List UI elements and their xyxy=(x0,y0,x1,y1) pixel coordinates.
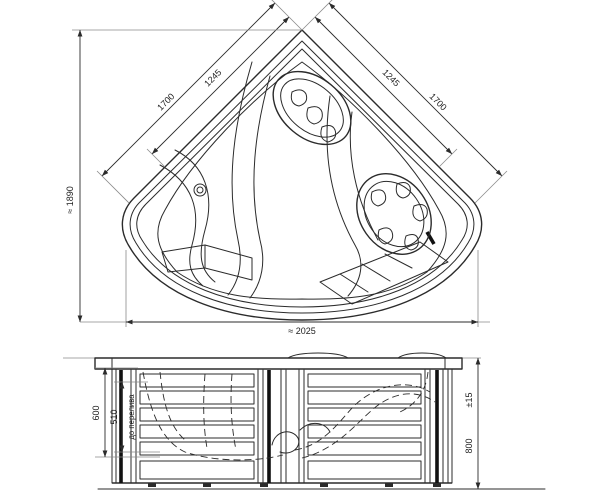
dim-label-side-left-outer: 1700 xyxy=(155,91,176,112)
headrest-hump-right xyxy=(398,353,446,358)
extension-line xyxy=(264,0,302,30)
dim-label-height-tolerance: ±15 xyxy=(464,393,474,408)
extension-line xyxy=(302,0,340,30)
dim-label-overflow-note: до перелива xyxy=(127,394,136,440)
dimension-overall-height: ≈ 1890 xyxy=(65,30,302,322)
headrest-top xyxy=(259,57,365,160)
jet-control xyxy=(194,184,206,196)
dim-label-height-value: 800 xyxy=(464,438,474,453)
top-view-outline xyxy=(122,30,481,320)
dim-label-depth-overflow: 510 xyxy=(109,409,119,424)
dimension-depth-total: 600 xyxy=(91,368,160,457)
headrest-hump-center xyxy=(288,353,348,358)
front-hidden-contours xyxy=(143,372,435,460)
front-view: 600 510 до перелива 800 ±15 xyxy=(63,353,545,489)
technical-drawing-canvas: 1700 1245 1245 1700 ≈ 1890 xyxy=(0,0,600,500)
dim-label-overall-height: ≈ 1890 xyxy=(65,186,75,213)
dim-label-side-right-outer: 1700 xyxy=(428,91,449,112)
bathtub-technical-drawing: 1700 1245 1245 1700 ≈ 1890 xyxy=(0,0,600,500)
dimension-overall-height-front: 800 ±15 xyxy=(464,358,478,489)
slat-panel-left xyxy=(140,374,254,479)
front-rim xyxy=(95,353,462,369)
dim-label-depth-total: 600 xyxy=(91,405,101,420)
top-view: 1700 1245 1245 1700 ≈ 1890 xyxy=(65,0,507,336)
dim-label-overall-width: ≈ 2025 xyxy=(288,326,315,336)
